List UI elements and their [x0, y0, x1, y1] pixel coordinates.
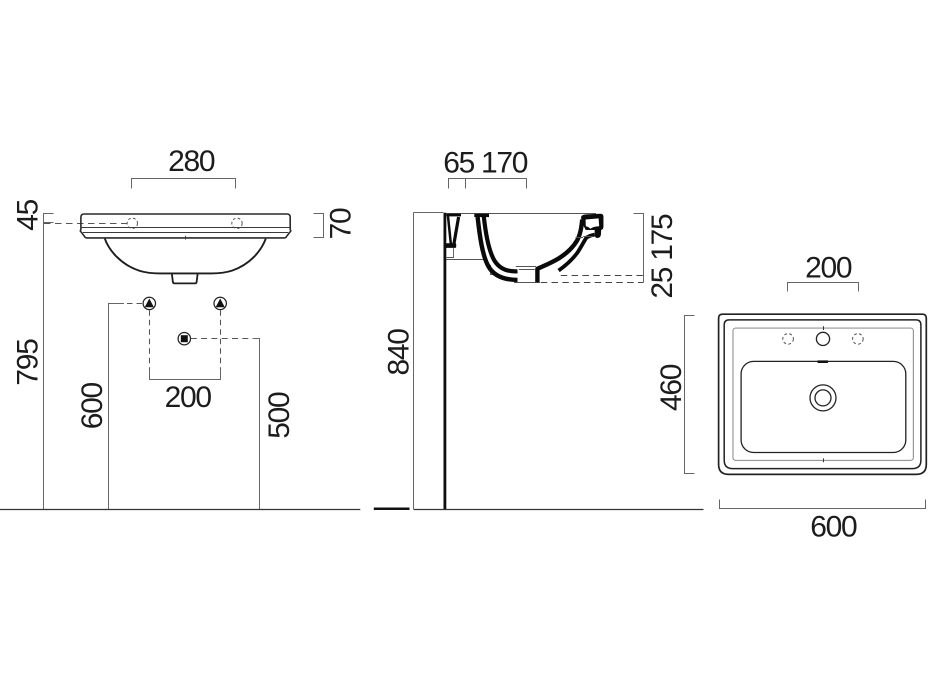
- svg-text:500: 500: [263, 392, 296, 439]
- svg-text:25 175: 25 175: [646, 214, 679, 299]
- svg-text:45: 45: [11, 199, 44, 230]
- svg-text:65 170: 65 170: [443, 147, 528, 180]
- svg-text:600: 600: [76, 383, 109, 430]
- svg-text:280: 280: [168, 145, 215, 178]
- svg-text:200: 200: [165, 381, 212, 414]
- svg-text:600: 600: [810, 510, 857, 543]
- svg-text:460: 460: [655, 364, 688, 411]
- svg-text:70: 70: [325, 208, 358, 239]
- svg-text:200: 200: [805, 252, 852, 285]
- svg-text:795: 795: [12, 339, 45, 386]
- svg-text:840: 840: [382, 329, 415, 376]
